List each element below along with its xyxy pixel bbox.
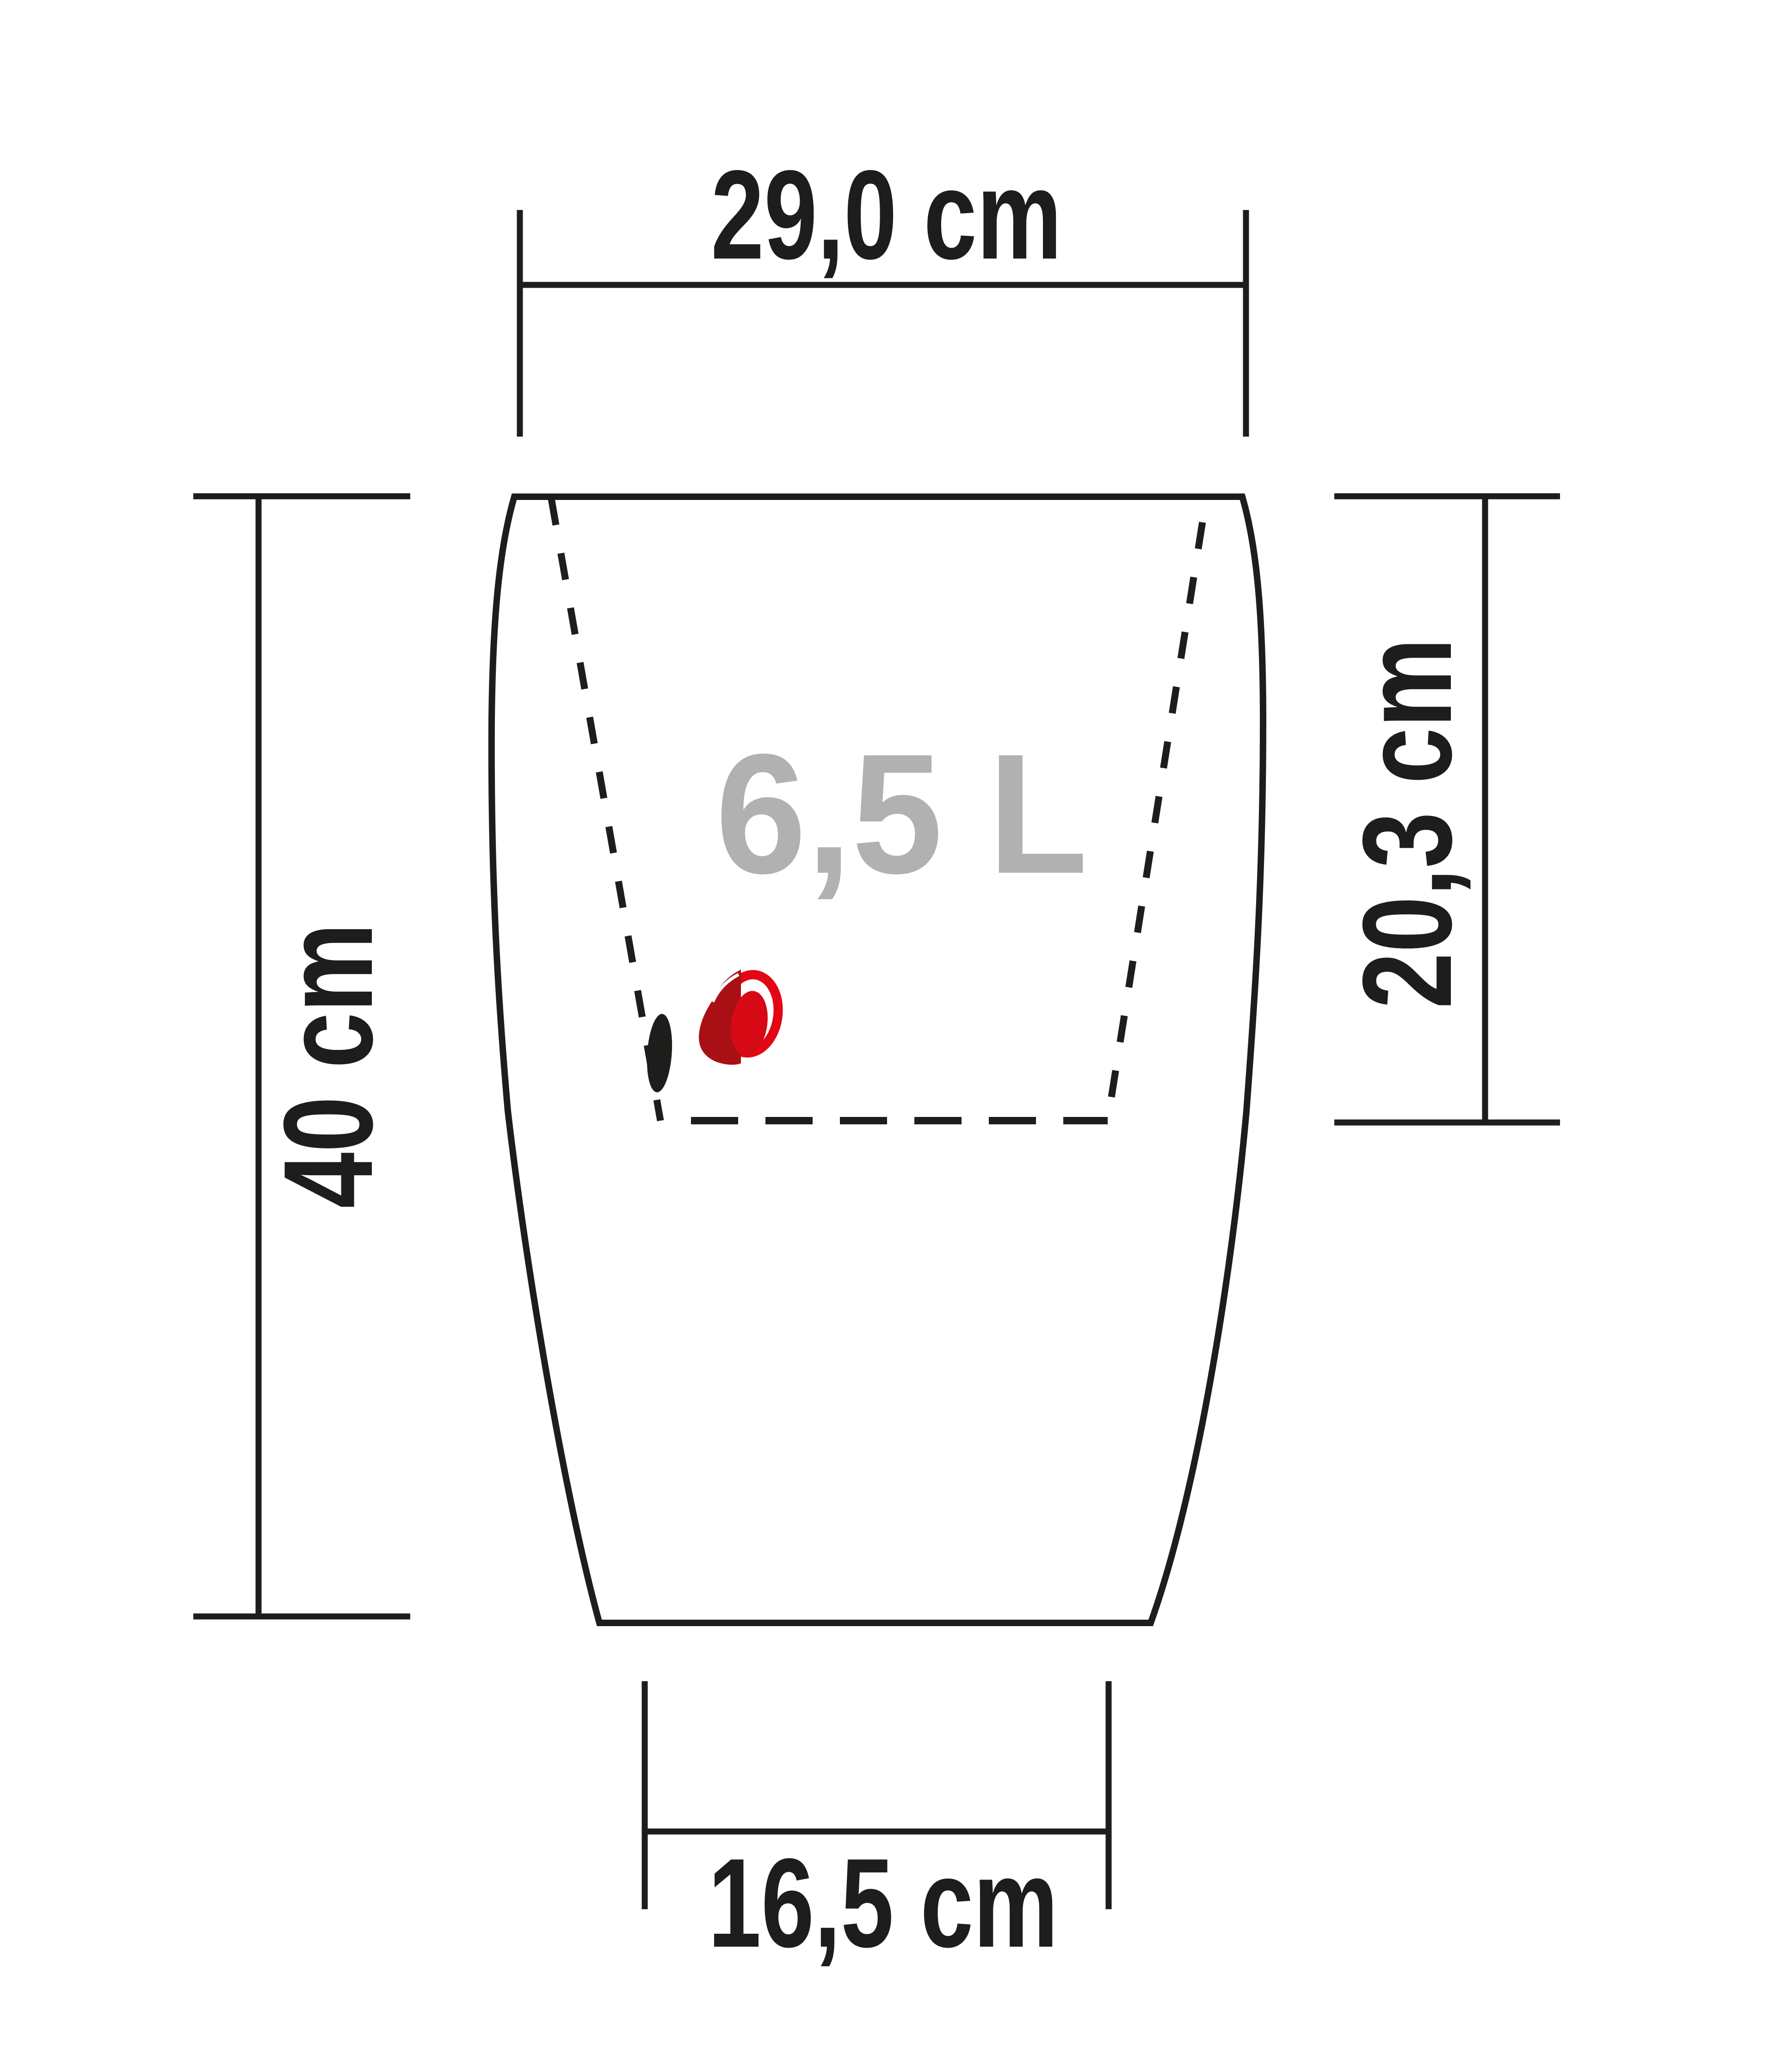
svg-text:29,0 cm: 29,0 cm xyxy=(711,144,1062,286)
svg-text:16,5 cm: 16,5 cm xyxy=(708,1832,1058,1974)
svg-text:6,5 L: 6,5 L xyxy=(715,719,1088,909)
svg-text:40 cm: 40 cm xyxy=(258,923,399,1209)
svg-text:20,3 cm: 20,3 cm xyxy=(1337,638,1478,1009)
